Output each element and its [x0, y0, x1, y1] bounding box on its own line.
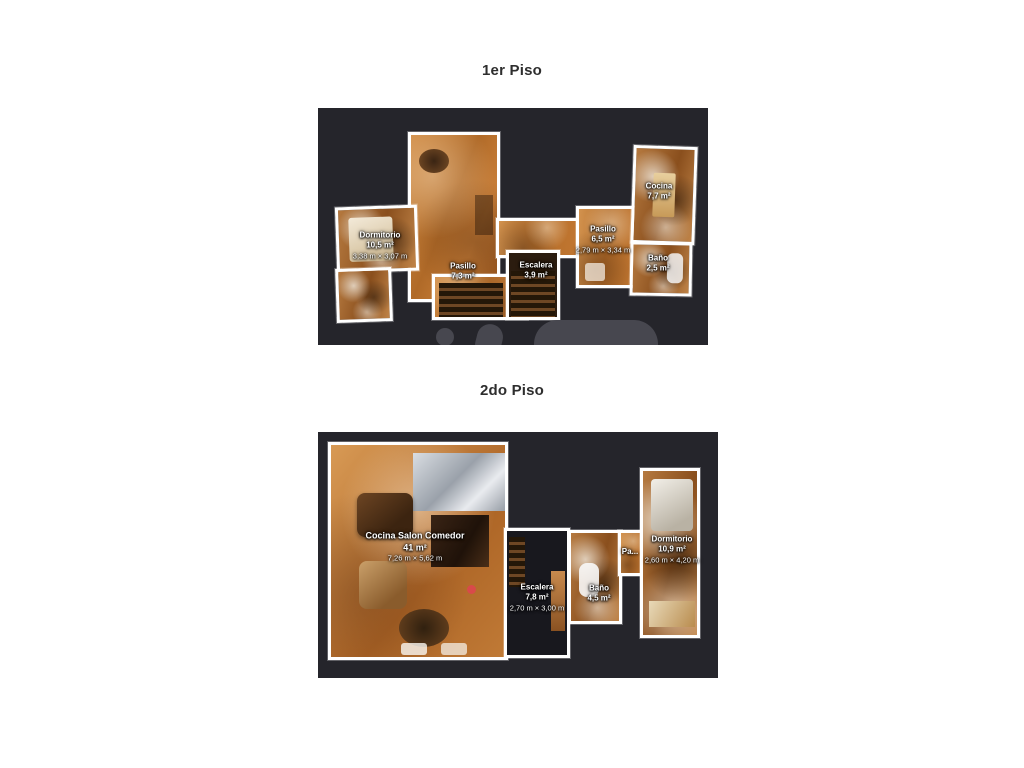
room-name: Baño	[587, 584, 610, 594]
room-name: Escalera	[520, 261, 553, 271]
marble-table	[413, 453, 508, 511]
bed	[651, 479, 693, 531]
room-name: Escalera	[510, 583, 564, 593]
stairs-steps	[509, 537, 525, 587]
watermark-shape	[436, 328, 454, 345]
watermark-shape	[534, 320, 658, 345]
red-object	[467, 585, 476, 594]
room-area: 10,5 m²	[353, 241, 407, 251]
furniture-blob	[585, 263, 605, 281]
watermark-shape	[472, 321, 505, 345]
room-name: Dormitorio	[353, 231, 407, 241]
room-name: Baño	[646, 254, 669, 264]
room-label-cocina-1: Cocina 7,7 m²	[646, 182, 673, 203]
floor1-plan-image: Dormitorio 10,5 m² 3,38 m × 3,07 m Pasil…	[318, 108, 708, 345]
room-name: Cocina Salon Comedor	[365, 530, 464, 542]
room-label-dormitorio-2: Dormitorio 10,9 m² 2,60 m × 4,20 m	[645, 535, 699, 566]
room-label-pasillo-central: Pasillo 7,3 m²	[450, 262, 476, 283]
chair	[401, 643, 427, 655]
stairs-steps	[439, 283, 503, 317]
sofa	[359, 561, 407, 609]
room-name: Pasillo	[450, 262, 476, 272]
room-label-bano-2: Baño 4,5 m²	[587, 584, 610, 605]
room-name: Pasillo	[576, 225, 630, 235]
floor1-title: 1er Piso	[0, 62, 1024, 79]
room-label-pasillo-2: Pa...	[622, 547, 638, 557]
room-area: 7,3 m²	[450, 272, 476, 282]
room-area: 7,8 m²	[510, 593, 564, 603]
round-table	[399, 609, 449, 647]
room-label-dormitorio-1: Dormitorio 10,5 m² 3,38 m × 3,07 m	[353, 231, 407, 262]
room-name: Pa...	[622, 547, 638, 557]
room-dims: 2,70 m × 3,00 m	[510, 604, 564, 614]
room-label-bano-1: Baño 2,5 m²	[646, 254, 669, 275]
room-area: 3,9 m²	[520, 271, 553, 281]
floor1-room-dormitorio-lower	[335, 267, 393, 323]
room-name: Dormitorio	[645, 535, 699, 545]
furniture-blob	[649, 601, 695, 627]
room-dims: 2,79 m × 3,34 m	[576, 246, 630, 256]
furniture-blob	[419, 149, 449, 173]
floor2-plan-image: Cocina Salon Comedor 41 m² 7,26 m × 5,62…	[318, 432, 718, 678]
room-dims: 2,60 m × 4,20 m	[645, 556, 699, 566]
chair	[441, 643, 467, 655]
room-area: 10,9 m²	[645, 545, 699, 555]
room-label-pasillo-right: Pasillo 6,5 m² 2,79 m × 3,34 m	[576, 225, 630, 256]
floor2-room-bano	[568, 530, 622, 624]
room-label-cocina-salon-comedor: Cocina Salon Comedor 41 m² 7,26 m × 5,62…	[365, 530, 464, 563]
room-name: Cocina	[646, 182, 673, 192]
room-area: 41 m²	[365, 542, 464, 554]
room-area: 6,5 m²	[576, 235, 630, 245]
room-label-escalera-1: Escalera 3,9 m²	[520, 261, 553, 282]
furniture-blob	[475, 195, 493, 235]
room-area: 7,7 m²	[646, 192, 673, 202]
room-dims: 3,38 m × 3,07 m	[353, 252, 407, 262]
room-area: 4,5 m²	[587, 594, 610, 604]
room-label-escalera-2: Escalera 7,8 m² 2,70 m × 3,00 m	[510, 583, 564, 614]
floor-plan-page: 1er Piso	[0, 0, 1024, 768]
floor2-title: 2do Piso	[0, 382, 1024, 399]
room-area: 2,5 m²	[646, 264, 669, 274]
room-dims: 7,26 m × 5,62 m	[365, 554, 464, 564]
